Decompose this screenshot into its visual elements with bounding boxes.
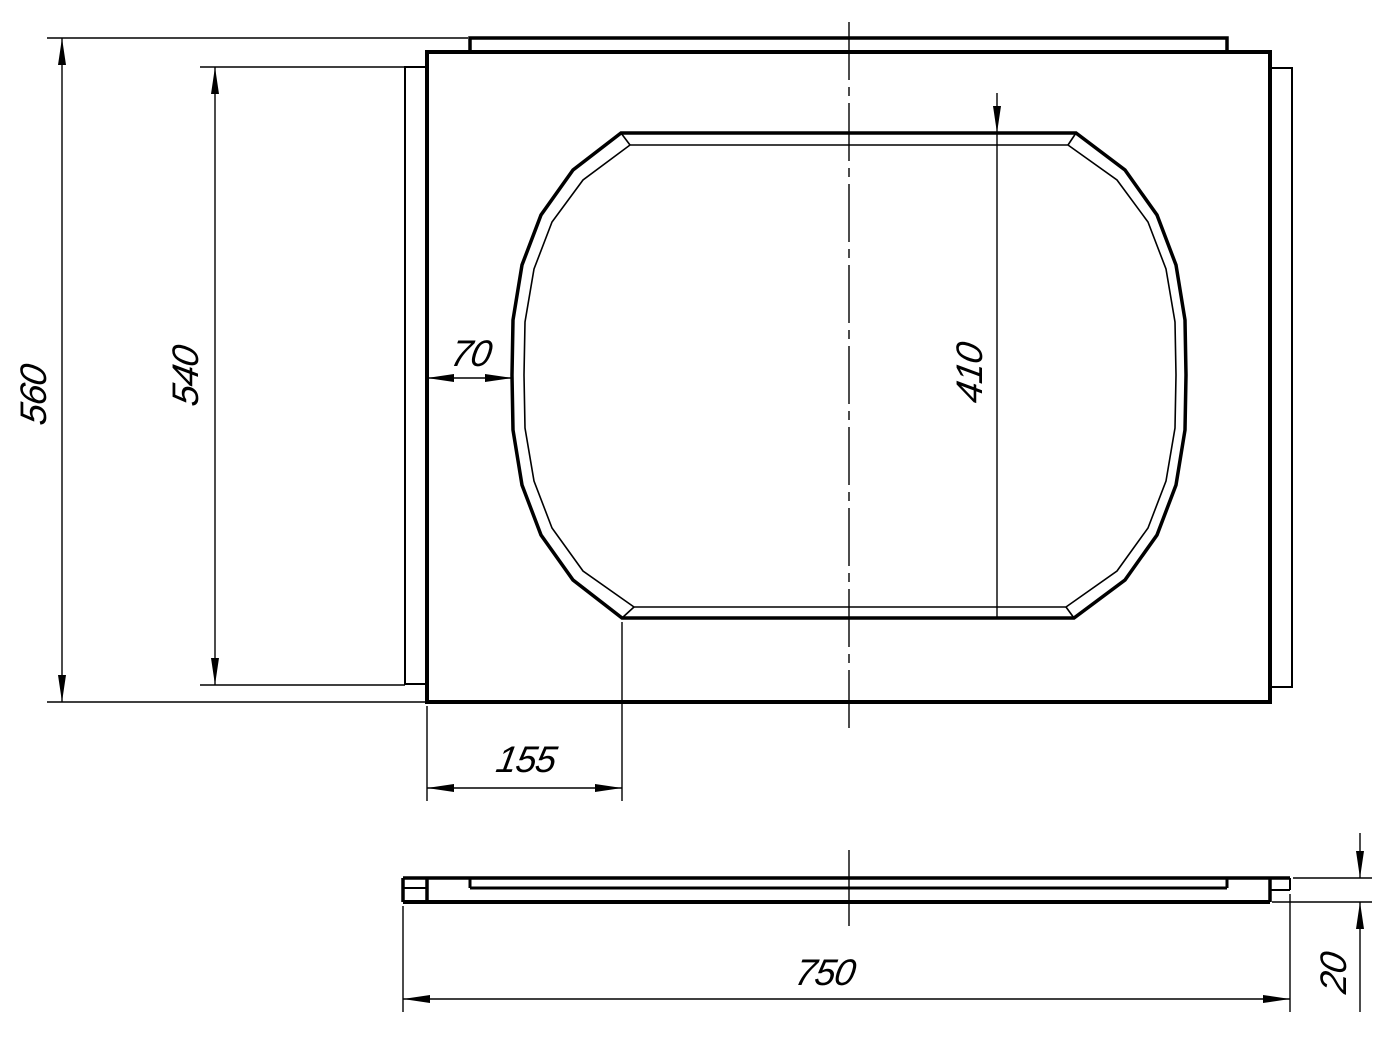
dimension-155: 155 bbox=[427, 622, 622, 801]
dim-20-label: 20 bbox=[1312, 948, 1354, 997]
arrow-down bbox=[211, 658, 219, 685]
arrow-down bbox=[1356, 851, 1364, 878]
dimension-540: 540 bbox=[164, 67, 405, 685]
dim-155-label: 155 bbox=[493, 738, 560, 780]
arrow-right bbox=[1263, 995, 1290, 1003]
plan-view bbox=[405, 22, 1292, 733]
drawing-canvas: 560 540 70 410 155 bbox=[0, 0, 1385, 1053]
arrow-left bbox=[427, 374, 454, 382]
technical-drawing: 560 540 70 410 155 bbox=[0, 0, 1385, 1053]
dimension-560: 560 bbox=[12, 38, 468, 702]
arrow-down bbox=[58, 675, 66, 702]
dim-540-label: 540 bbox=[164, 341, 206, 408]
cutout-inner-bevel-edge bbox=[524, 145, 1176, 607]
arrow-left bbox=[427, 784, 454, 792]
side-view bbox=[403, 850, 1290, 926]
dimension-70: 70 bbox=[427, 332, 512, 382]
dim-560-label: 560 bbox=[12, 360, 54, 427]
dimension-750: 750 bbox=[403, 894, 1290, 1012]
dim-410-label: 410 bbox=[948, 338, 990, 405]
left-tab-outline bbox=[405, 67, 427, 684]
arrow-right bbox=[485, 374, 512, 382]
arrow-down bbox=[993, 106, 1001, 133]
dimension-410: 410 bbox=[948, 93, 1001, 618]
arrow-up bbox=[1356, 902, 1364, 929]
dimension-20: 20 bbox=[1272, 833, 1372, 1012]
dim-70-label: 70 bbox=[448, 332, 496, 374]
arrow-left bbox=[403, 995, 430, 1003]
arrow-up bbox=[211, 67, 219, 94]
dim-750-label: 750 bbox=[792, 951, 859, 993]
arrow-right bbox=[595, 784, 622, 792]
right-tab-outline bbox=[1270, 68, 1292, 687]
arrow-up bbox=[58, 38, 66, 65]
